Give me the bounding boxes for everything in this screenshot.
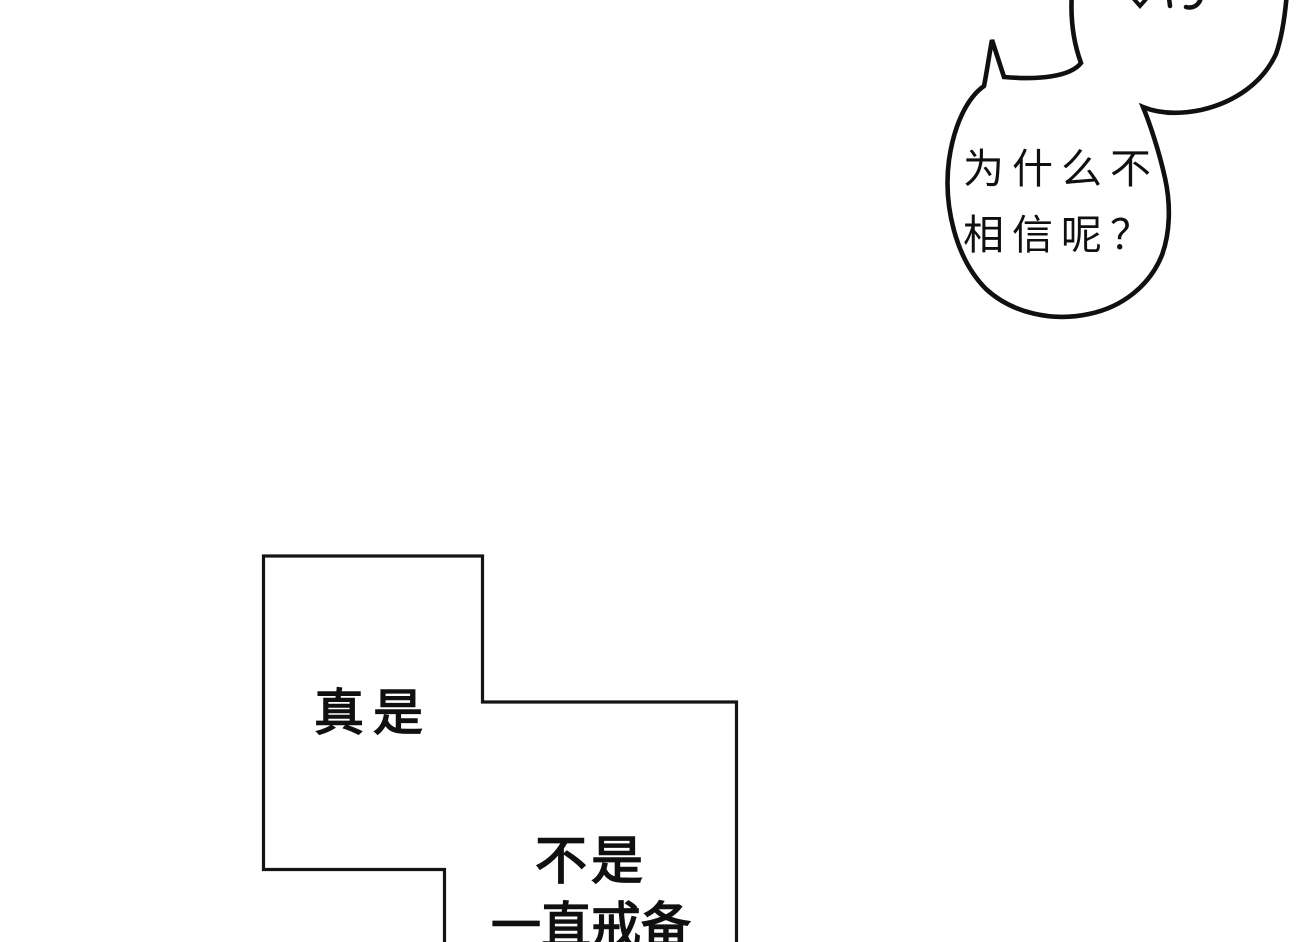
clipped-glyph-stroke-2 (1169, 0, 1170, 6)
speech-bubble-text: 为什么不 相信呢？ (938, 136, 1184, 268)
comic-page: 为什么不 相信呢？ 真是 不是 一直戒备 (0, 0, 1300, 942)
panel-caption-jiebei: 一直戒备 (445, 898, 737, 942)
panel-caption-zhenshi: 真是 (263, 686, 483, 740)
speech-bubble-line-1: 为什么不 (938, 136, 1184, 202)
speech-bubble-line-2: 相信呢？ (938, 202, 1184, 268)
panel-caption-bushi: 不是 (445, 834, 737, 890)
